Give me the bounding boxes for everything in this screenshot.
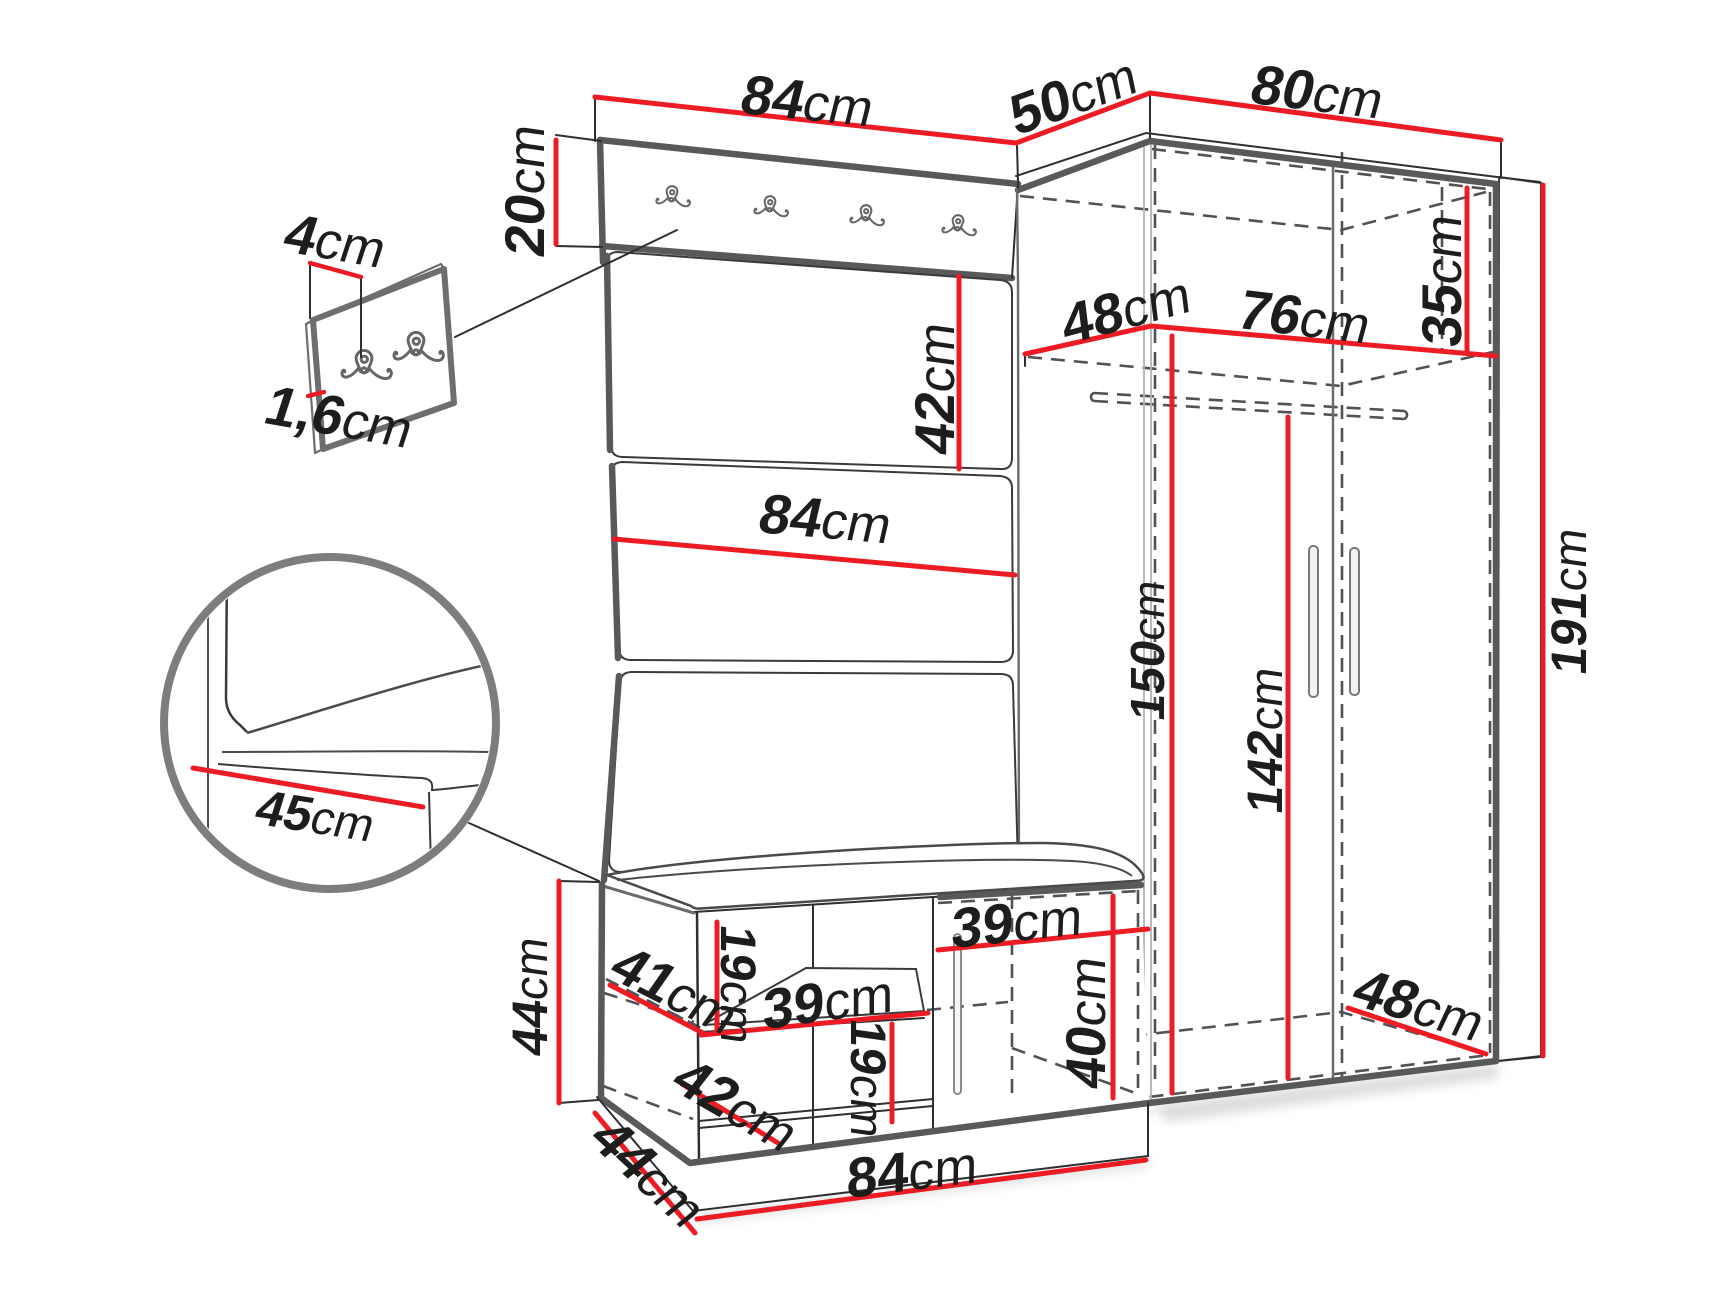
svg-text:44cm: 44cm [502, 933, 558, 1059]
svg-text:19cm: 19cm [710, 922, 766, 1048]
svg-text:142cm: 142cm [1237, 663, 1293, 817]
svg-text:20cm: 20cm [493, 120, 556, 260]
svg-text:191cm: 191cm [1541, 524, 1597, 678]
svg-text:42cm: 42cm [903, 318, 966, 458]
svg-text:35cm: 35cm [1410, 210, 1473, 350]
svg-text:150cm: 150cm [1121, 576, 1175, 724]
svg-text:19cm: 19cm [840, 1016, 896, 1142]
svg-text:40cm: 40cm [1054, 952, 1117, 1092]
